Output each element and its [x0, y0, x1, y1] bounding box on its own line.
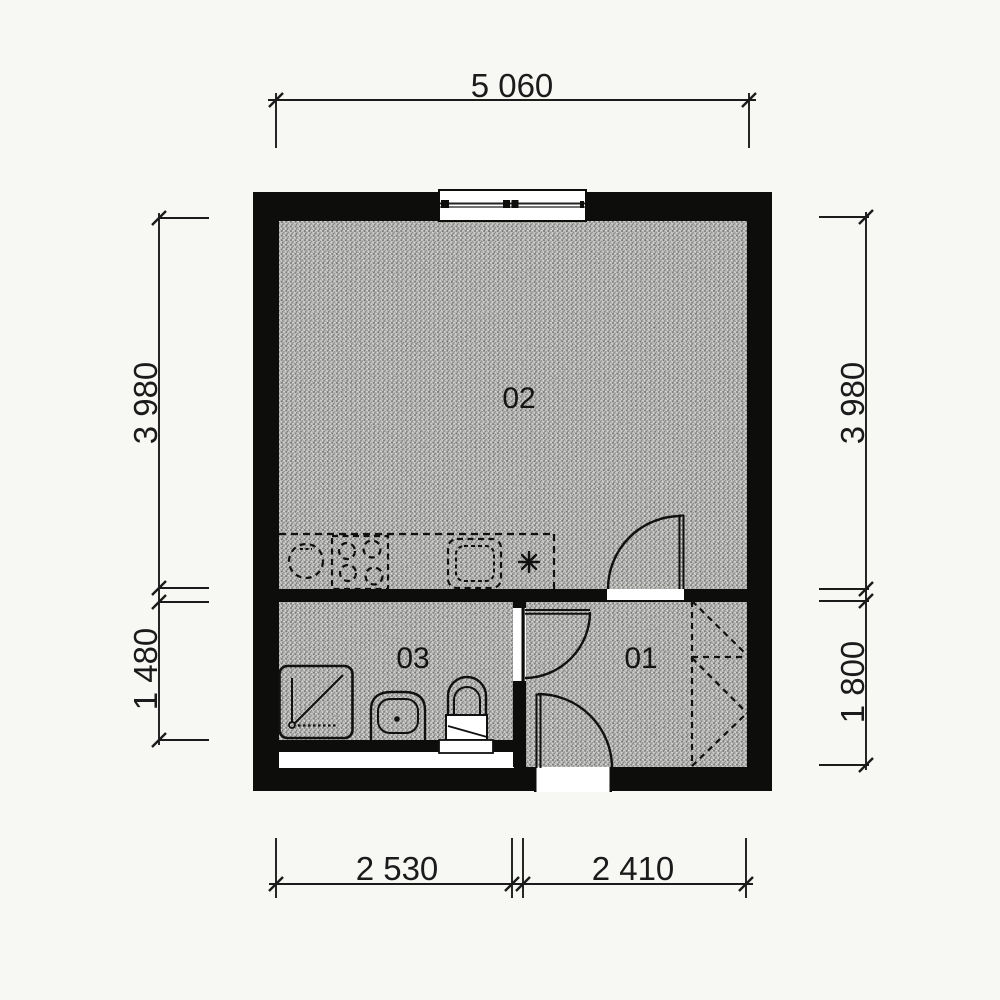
svg-text:1 800: 1 800	[834, 641, 871, 724]
svg-text:5 060: 5 060	[471, 67, 554, 104]
svg-text:3 980: 3 980	[834, 362, 871, 445]
svg-text:02: 02	[502, 382, 535, 415]
svg-text:2 530: 2 530	[356, 850, 439, 887]
svg-text:1 480: 1 480	[127, 628, 164, 711]
svg-text:3 980: 3 980	[127, 362, 164, 445]
svg-text:2 410: 2 410	[592, 850, 675, 887]
svg-text:03: 03	[396, 642, 429, 675]
svg-text:01: 01	[624, 642, 657, 675]
